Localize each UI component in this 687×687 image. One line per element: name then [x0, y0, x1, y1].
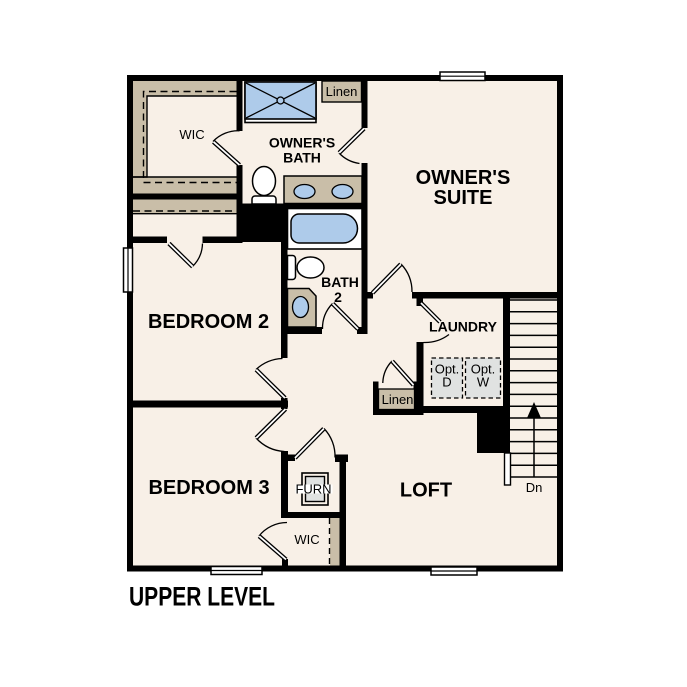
svg-text:UPPER LEVEL: UPPER LEVEL — [129, 582, 275, 612]
svg-text:Dn: Dn — [526, 480, 543, 495]
svg-text:WIC: WIC — [294, 532, 319, 547]
svg-text:OWNER'S: OWNER'S — [416, 167, 511, 189]
svg-text:BATH: BATH — [283, 150, 321, 166]
svg-text:LOFT: LOFT — [400, 480, 452, 502]
svg-text:2: 2 — [334, 289, 342, 305]
svg-text:LAUNDRY: LAUNDRY — [429, 319, 498, 335]
svg-text:Linen: Linen — [326, 84, 358, 99]
svg-text:BEDROOM 2: BEDROOM 2 — [148, 311, 269, 333]
svg-text:W: W — [477, 375, 490, 390]
svg-text:D: D — [442, 375, 451, 390]
svg-text:FURN: FURN — [295, 482, 331, 497]
svg-text:BATH: BATH — [321, 274, 359, 290]
svg-text:Linen: Linen — [382, 392, 414, 407]
svg-text:OWNER'S: OWNER'S — [269, 135, 335, 151]
svg-text:SUITE: SUITE — [434, 187, 493, 209]
svg-text:WIC: WIC — [179, 127, 204, 142]
svg-text:BEDROOM 3: BEDROOM 3 — [148, 477, 269, 499]
